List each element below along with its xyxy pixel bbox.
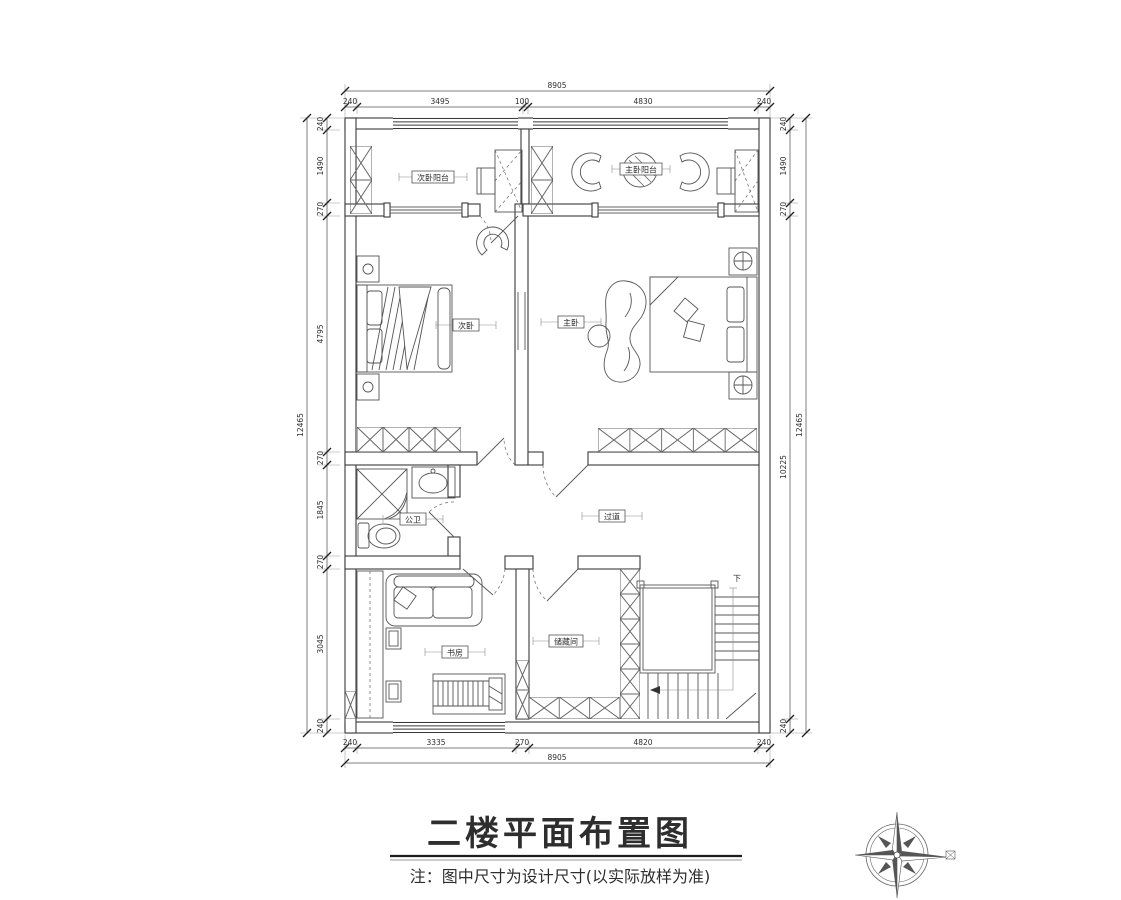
shower — [357, 469, 407, 519]
dim-bottom-seg1: 3335 — [426, 738, 445, 747]
door-study — [463, 569, 505, 595]
label-bedroom-left: 次卧 — [436, 319, 496, 331]
page-title: 二楼平面布置图 — [427, 814, 693, 854]
stair-treads-bottom — [648, 673, 718, 719]
nightstand-columns — [729, 248, 757, 399]
bathroom-fixtures — [357, 467, 455, 548]
dim-bottom-seg2: 270 — [515, 738, 530, 747]
stair-down-label: 下 — [733, 574, 741, 583]
label-balcony-left: 次卧阳台 — [399, 171, 467, 183]
label-hallway: 过道 — [582, 510, 642, 522]
dim-left-seg3: 4795 — [316, 324, 325, 343]
dim-right-seg4: 240 — [779, 719, 788, 734]
note-text: 注：图中尺寸为设计尺寸(以实际放样为准) — [410, 867, 711, 886]
study-furniture — [357, 571, 505, 718]
furniture — [357, 153, 757, 718]
label-study: 书房 — [425, 646, 485, 658]
dim-bottom-seg4: 240 — [757, 738, 772, 747]
title-block: 二楼平面布置图 注：图中尺寸为设计尺寸(以实际放样为准) — [390, 814, 742, 886]
dim-left-seg4: 270 — [316, 451, 325, 466]
dim-top-seg2: 100 — [515, 97, 530, 106]
dim-right-overall: 12465 — [795, 413, 804, 437]
svg-text:储藏间: 储藏间 — [554, 637, 578, 647]
door-bedroom-left — [477, 438, 515, 465]
dimensions-bottom: 240 3335 270 4820 240 8905 — [341, 735, 774, 768]
dim-top-seg3: 4830 — [633, 97, 652, 106]
bed-secondary — [357, 256, 452, 400]
dim-bottom-seg3: 4820 — [633, 738, 652, 747]
label-storage: 储藏间 — [533, 635, 599, 647]
bed-master — [650, 248, 757, 399]
dim-top-overall: 8905 — [547, 81, 566, 90]
dim-left-seg1: 1490 — [316, 156, 325, 175]
dimensions-right: 240 1490 270 10225 240 12465 — [771, 114, 812, 737]
hatched-elements — [345, 146, 758, 719]
svg-text:主卧: 主卧 — [563, 318, 579, 328]
wall-side-tables — [386, 628, 401, 702]
closet-balcony-left — [477, 150, 522, 212]
svg-text:过道: 过道 — [604, 512, 620, 522]
dim-top-seg1: 3495 — [430, 97, 449, 106]
hatched-wall-stairs — [620, 569, 640, 719]
dim-left-seg6: 270 — [316, 555, 325, 570]
svg-text:次卧阳台: 次卧阳台 — [417, 173, 449, 183]
study-cabinet — [357, 571, 383, 718]
dim-right-seg0: 240 — [779, 117, 788, 132]
dim-left-seg0: 240 — [316, 117, 325, 132]
sofa — [386, 574, 482, 626]
dim-left-seg2: 270 — [316, 202, 325, 217]
toilet — [358, 523, 400, 548]
door-bathroom — [429, 502, 454, 537]
door-balcony-to-bedroom-left — [480, 216, 518, 243]
dim-right-seg3: 10225 — [779, 455, 788, 479]
label-bedroom-right: 主卧 — [541, 316, 601, 328]
wardrobe-bedroom-right — [598, 428, 757, 452]
door-storage — [533, 569, 578, 601]
dim-right-seg2: 270 — [779, 202, 788, 217]
label-balcony-right: 主卧阳台 — [612, 163, 670, 175]
staircase: 下 — [637, 574, 759, 719]
dim-bottom-seg0: 240 — [343, 738, 358, 747]
dim-left-seg5: 1845 — [316, 500, 325, 519]
dimensions-top: 8905 240 3495 100 4830 240 — [341, 81, 774, 117]
dim-left-seg7: 3045 — [316, 634, 325, 653]
wardrobe-bedroom-left — [357, 427, 461, 452]
svg-text:主卧阳台: 主卧阳台 — [625, 165, 657, 175]
svg-text:书房: 书房 — [447, 648, 463, 658]
dim-left-seg8: 240 — [316, 719, 325, 734]
compass-rose-icon — [855, 812, 955, 898]
dim-left-overall: 12465 — [296, 413, 305, 437]
dim-top-seg0: 240 — [343, 97, 358, 106]
stair-direction-arrow — [650, 686, 660, 694]
dimensions-left: 240 1490 270 4795 270 1845 270 3045 240 … — [296, 114, 344, 737]
svg-text:次卧: 次卧 — [458, 321, 474, 331]
door-bedroom-right — [543, 465, 588, 497]
dim-right-seg1: 1490 — [779, 156, 788, 175]
piano — [433, 674, 505, 714]
chaise-lounge — [588, 281, 646, 382]
svg-text:公卫: 公卫 — [405, 516, 421, 525]
dim-bottom-overall: 8905 — [547, 753, 566, 762]
floorplan-drawing: 8905 240 3495 100 4830 240 240 3335 270 … — [0, 0, 1121, 900]
floorplan-page: 8905 240 3495 100 4830 240 240 3335 270 … — [0, 0, 1121, 900]
compass-east-marker — [946, 851, 955, 859]
dim-top-seg4: 240 — [757, 97, 772, 106]
stair-treads-right — [715, 597, 759, 660]
